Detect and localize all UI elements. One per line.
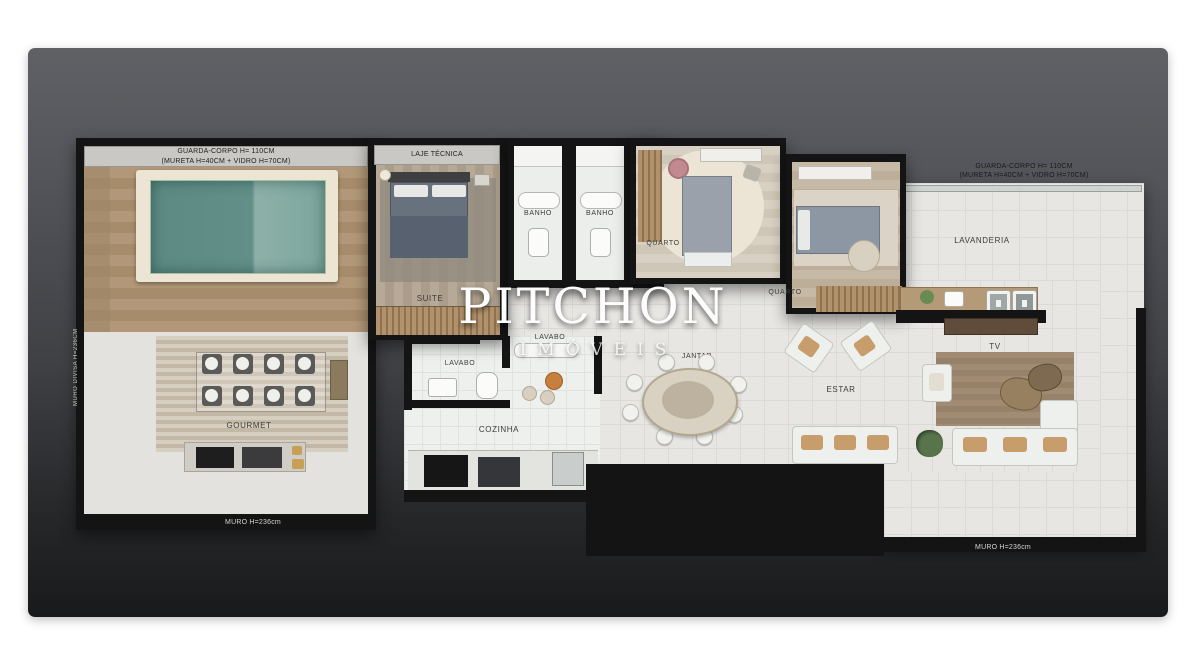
suite-pillow-2 [432,185,466,197]
dining-table-center [662,381,714,419]
quarto1-bed-bench [684,252,732,267]
banho2-toilet [590,228,611,257]
estar-sofa [792,426,898,464]
watermark-subtitle: IMÓVEIS [393,340,793,360]
muro-divisa-label: MURO DIVISA H=236CM [73,286,79,406]
plant [916,430,943,457]
laje-tecnica-bar: LAJE TÉCNICA [374,145,500,165]
gourmet-label: GOURMET [189,421,309,430]
estar-label: ESTAR [801,385,881,394]
kitchen-oven [478,457,520,487]
nook-table [545,372,563,390]
tv-console [944,318,1038,335]
suite-pillow-1 [394,185,428,197]
counter-item-1 [292,446,302,455]
watermark-brand: PITCHON [343,278,843,335]
lavanderia-label: LAVANDERIA [922,236,1042,245]
muro-right-label: MURO H=236cm [943,544,1063,553]
kitchen-sink [552,452,584,486]
banho1-sink [518,192,560,209]
laundry-sink [944,291,964,307]
gourmet-chairs-row1 [202,354,315,374]
laje-tecnica-label: LAJE TÉCNICA [375,151,499,160]
quarto2-pillows [798,210,810,250]
guard-corpo-right: GUARDA-CORPO H= 110CM (MURETA H=40CM + V… [924,163,1124,180]
lavabo1-toilet [476,372,498,399]
lavabo1-sink [428,378,457,397]
banho2-label: BANHO [576,210,624,217]
quarto1-dresser [700,148,762,162]
suite-bed-headboard [388,172,470,182]
guard-corpo-right-line1: GUARDA-CORPO H= 110CM [924,163,1124,172]
kitchen-bottom-wall [404,490,600,502]
quarto2-shelf [798,166,872,180]
lavabo1-label: LAVABO [433,360,487,367]
kitchen-stove [424,455,468,487]
banho2-sink [580,192,622,209]
quarto1-wardrobe [638,150,662,242]
quarto2-round-rug [848,240,880,272]
muro-left-label: MURO H=236cm [183,519,323,528]
quarto1-label: QUARTO [633,240,693,247]
tv-label: TV [965,342,1025,351]
right-boundary-wall [1136,308,1146,548]
guard-corpo-left-line1: GUARDA-CORPO H= 110CM [85,148,367,157]
banho1-shower [514,146,562,167]
gourmet-chairs-row2 [202,386,315,406]
grill-appliance [196,447,234,468]
gourmet-sideboard [330,360,348,400]
suite-nightstand [474,174,490,186]
suite-blanket [390,216,468,258]
guard-corpo-right-line2: (MURETA H=40CM + VIDRO H=70CM) [924,172,1124,181]
laundry-plant [920,290,934,304]
suite-decor [379,169,391,181]
tv-sofa [952,428,1078,466]
banho1-toilet [528,228,549,257]
banho2-shower [576,146,624,167]
guard-rail-bar-left: GUARDA-CORPO H= 110CM (MURETA H=40CM + V… [84,146,368,167]
pool-water [150,180,326,274]
dining-chair [622,404,639,421]
cozinha-label: COZINHA [469,425,529,434]
nook-chair-2 [540,390,555,405]
banho1-label: BANHO [514,210,562,217]
cooktop-appliance [242,447,282,468]
counter-item-2 [292,459,304,469]
floorplan-image: GUARDA-CORPO H= 110CM (MURETA H=40CM + V… [0,0,1184,650]
deck-edge-strip [84,167,110,332]
dining-chair [626,374,643,391]
glass-railing [898,185,1142,192]
tv-armchair [922,364,952,402]
living-bottom-wall-mass [586,464,884,556]
nook-chair-1 [522,386,537,401]
lavabo-wall-bottom [404,400,510,408]
guard-corpo-left-line2: (MURETA H=40CM + VIDRO H=70CM) [85,158,367,167]
